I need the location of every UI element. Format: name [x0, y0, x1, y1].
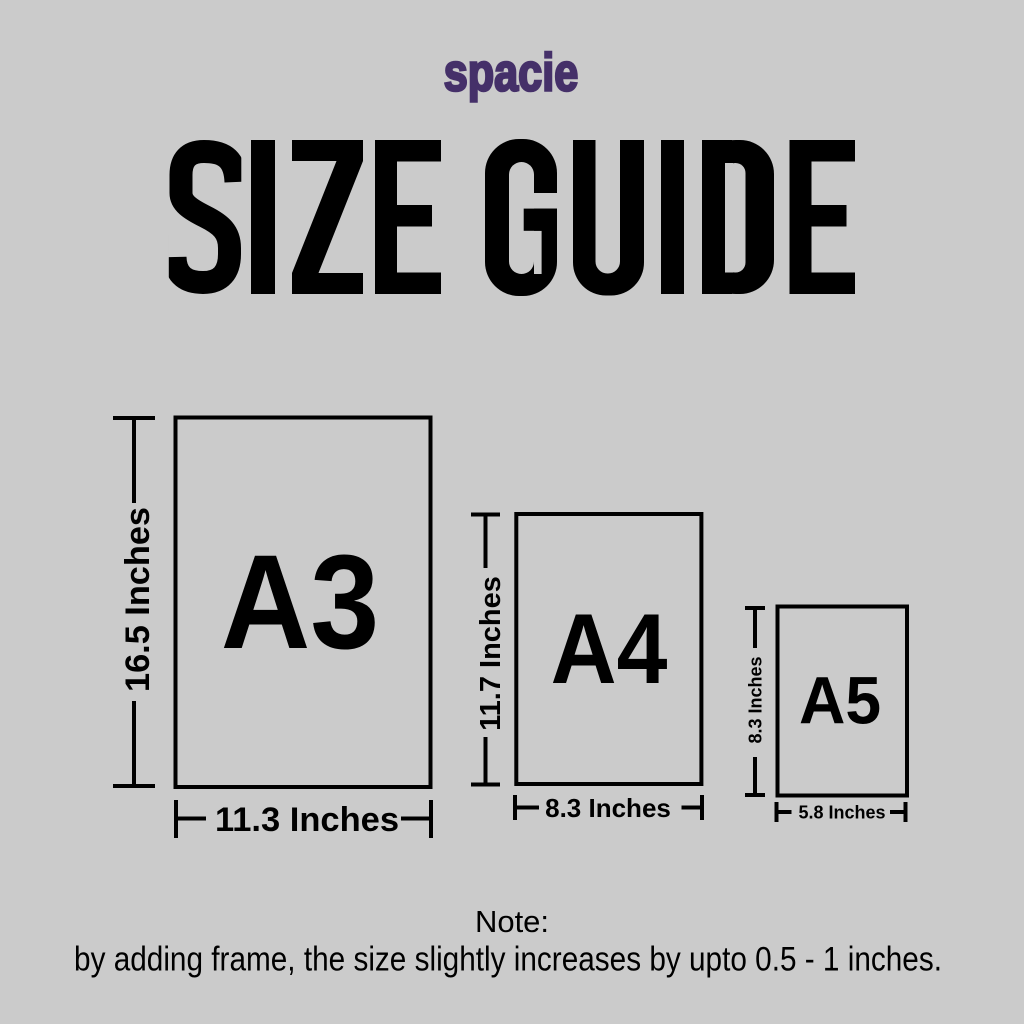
svg-text:16.5 Inches: 16.5 Inches — [119, 507, 157, 692]
svg-text:A3: A3 — [221, 528, 379, 677]
svg-text:A4: A4 — [551, 595, 668, 705]
svg-text:A5: A5 — [799, 663, 881, 738]
svg-text:8.3 Inches: 8.3 Inches — [545, 793, 671, 823]
svg-text:5.8 Inches: 5.8 Inches — [798, 803, 885, 823]
svg-text:spacie: spacie — [444, 43, 578, 102]
svg-text:8.3 Inches: 8.3 Inches — [746, 656, 766, 743]
svg-text:by adding frame, the size slig: by adding frame, the size slightly incre… — [74, 940, 942, 978]
svg-text:11.7 Inches: 11.7 Inches — [475, 576, 507, 731]
svg-text:Note:: Note: — [475, 904, 549, 939]
svg-text:11.3 Inches: 11.3 Inches — [215, 801, 399, 839]
